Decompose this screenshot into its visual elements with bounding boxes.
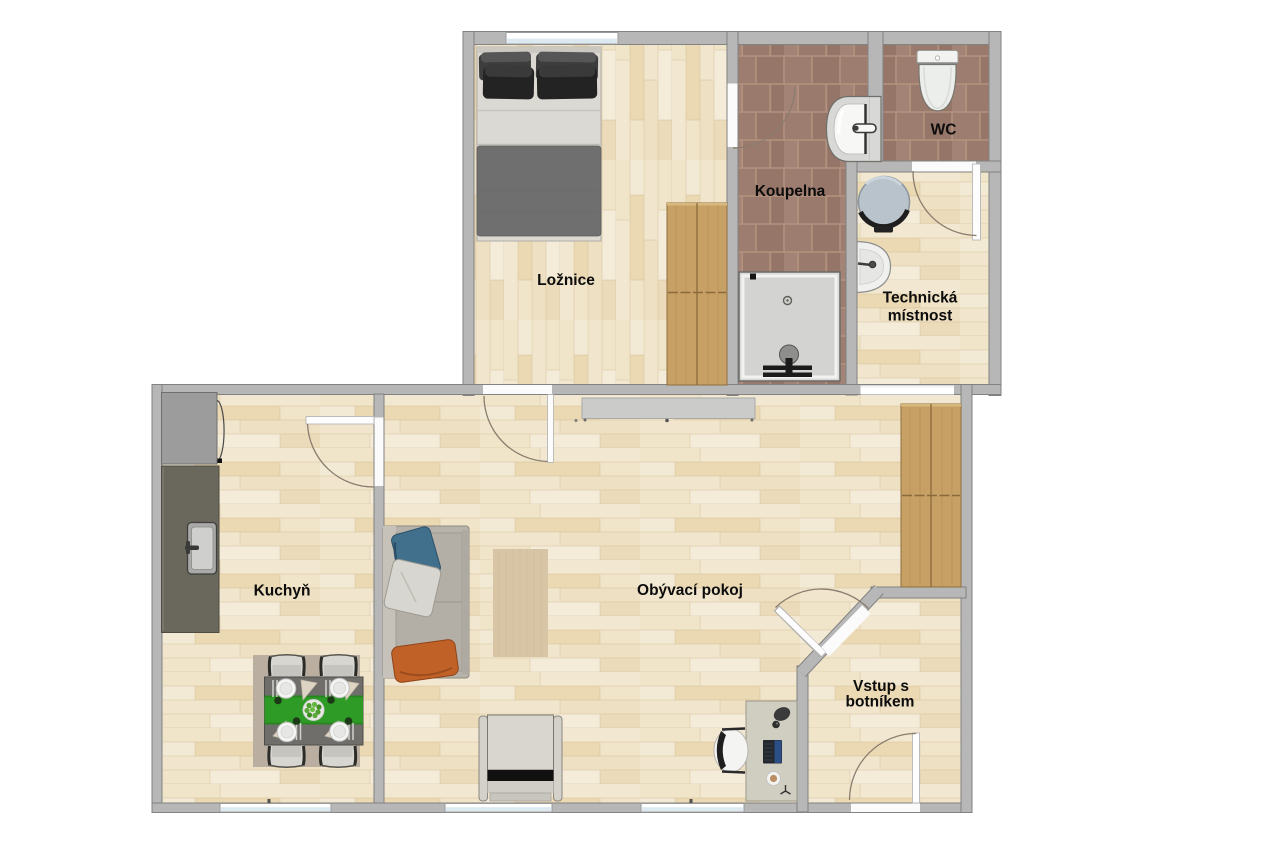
svg-text:Vstup s: Vstup s <box>853 678 909 695</box>
svg-text:Koupelna: Koupelna <box>755 183 826 200</box>
svg-text:Obývací pokoj: Obývací pokoj <box>637 582 743 599</box>
svg-text:Kuchyň: Kuchyň <box>254 583 311 600</box>
svg-text:botníkem: botníkem <box>846 694 915 711</box>
svg-text:Technická: Technická <box>883 290 958 307</box>
svg-text:místnost: místnost <box>888 308 953 325</box>
svg-text:WC: WC <box>931 122 957 139</box>
svg-text:Ložnice: Ložnice <box>537 272 595 289</box>
